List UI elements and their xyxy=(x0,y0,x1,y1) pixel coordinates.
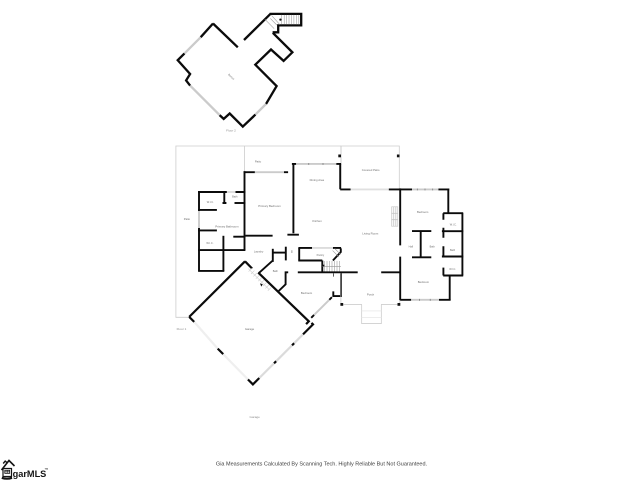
svg-text:ggarMLS: ggarMLS xyxy=(7,469,46,479)
svg-text:Hall: Hall xyxy=(409,246,414,249)
svg-text:Bath: Bath xyxy=(232,195,238,199)
svg-text:Bath: Bath xyxy=(430,246,436,249)
svg-text:Bedroom: Bedroom xyxy=(417,210,429,214)
svg-text:Bedroom: Bedroom xyxy=(301,291,313,295)
svg-text:Pantry: Pantry xyxy=(317,253,325,257)
svg-text:Floor 2: Floor 2 xyxy=(226,128,236,132)
svg-text:™: ™ xyxy=(45,467,49,472)
svg-text:Bath: Bath xyxy=(273,270,279,273)
svg-text:Patio: Patio xyxy=(255,159,262,163)
svg-text:Primary Bathroom: Primary Bathroom xyxy=(215,225,239,229)
svg-text:Bedroom: Bedroom xyxy=(418,280,430,284)
svg-text:W.I.C.: W.I.C. xyxy=(207,200,214,204)
svg-text:Porch: Porch xyxy=(367,292,375,296)
svg-text:W.I.C.: W.I.C. xyxy=(450,224,457,227)
svg-text:Covered Patio: Covered Patio xyxy=(362,168,380,172)
svg-text:Gia Measurements Calculated By: Gia Measurements Calculated By Scanning … xyxy=(216,462,428,468)
svg-text:Laundry: Laundry xyxy=(254,249,264,253)
svg-text:Kitchen: Kitchen xyxy=(312,219,322,223)
svg-text:W.I.C.: W.I.C. xyxy=(206,241,213,245)
svg-text:Floor 1: Floor 1 xyxy=(177,327,187,331)
svg-text:Garage: Garage xyxy=(245,327,255,331)
svg-text:Primary Bedroom: Primary Bedroom xyxy=(258,204,281,208)
svg-text:Patio: Patio xyxy=(184,217,191,221)
svg-text:Bath: Bath xyxy=(450,249,456,252)
svg-text:Dining Area: Dining Area xyxy=(310,178,325,182)
svg-text:W.I.C.: W.I.C. xyxy=(449,268,456,271)
svg-text:Garage: Garage xyxy=(250,415,261,419)
svg-text:Living Room: Living Room xyxy=(362,232,379,236)
